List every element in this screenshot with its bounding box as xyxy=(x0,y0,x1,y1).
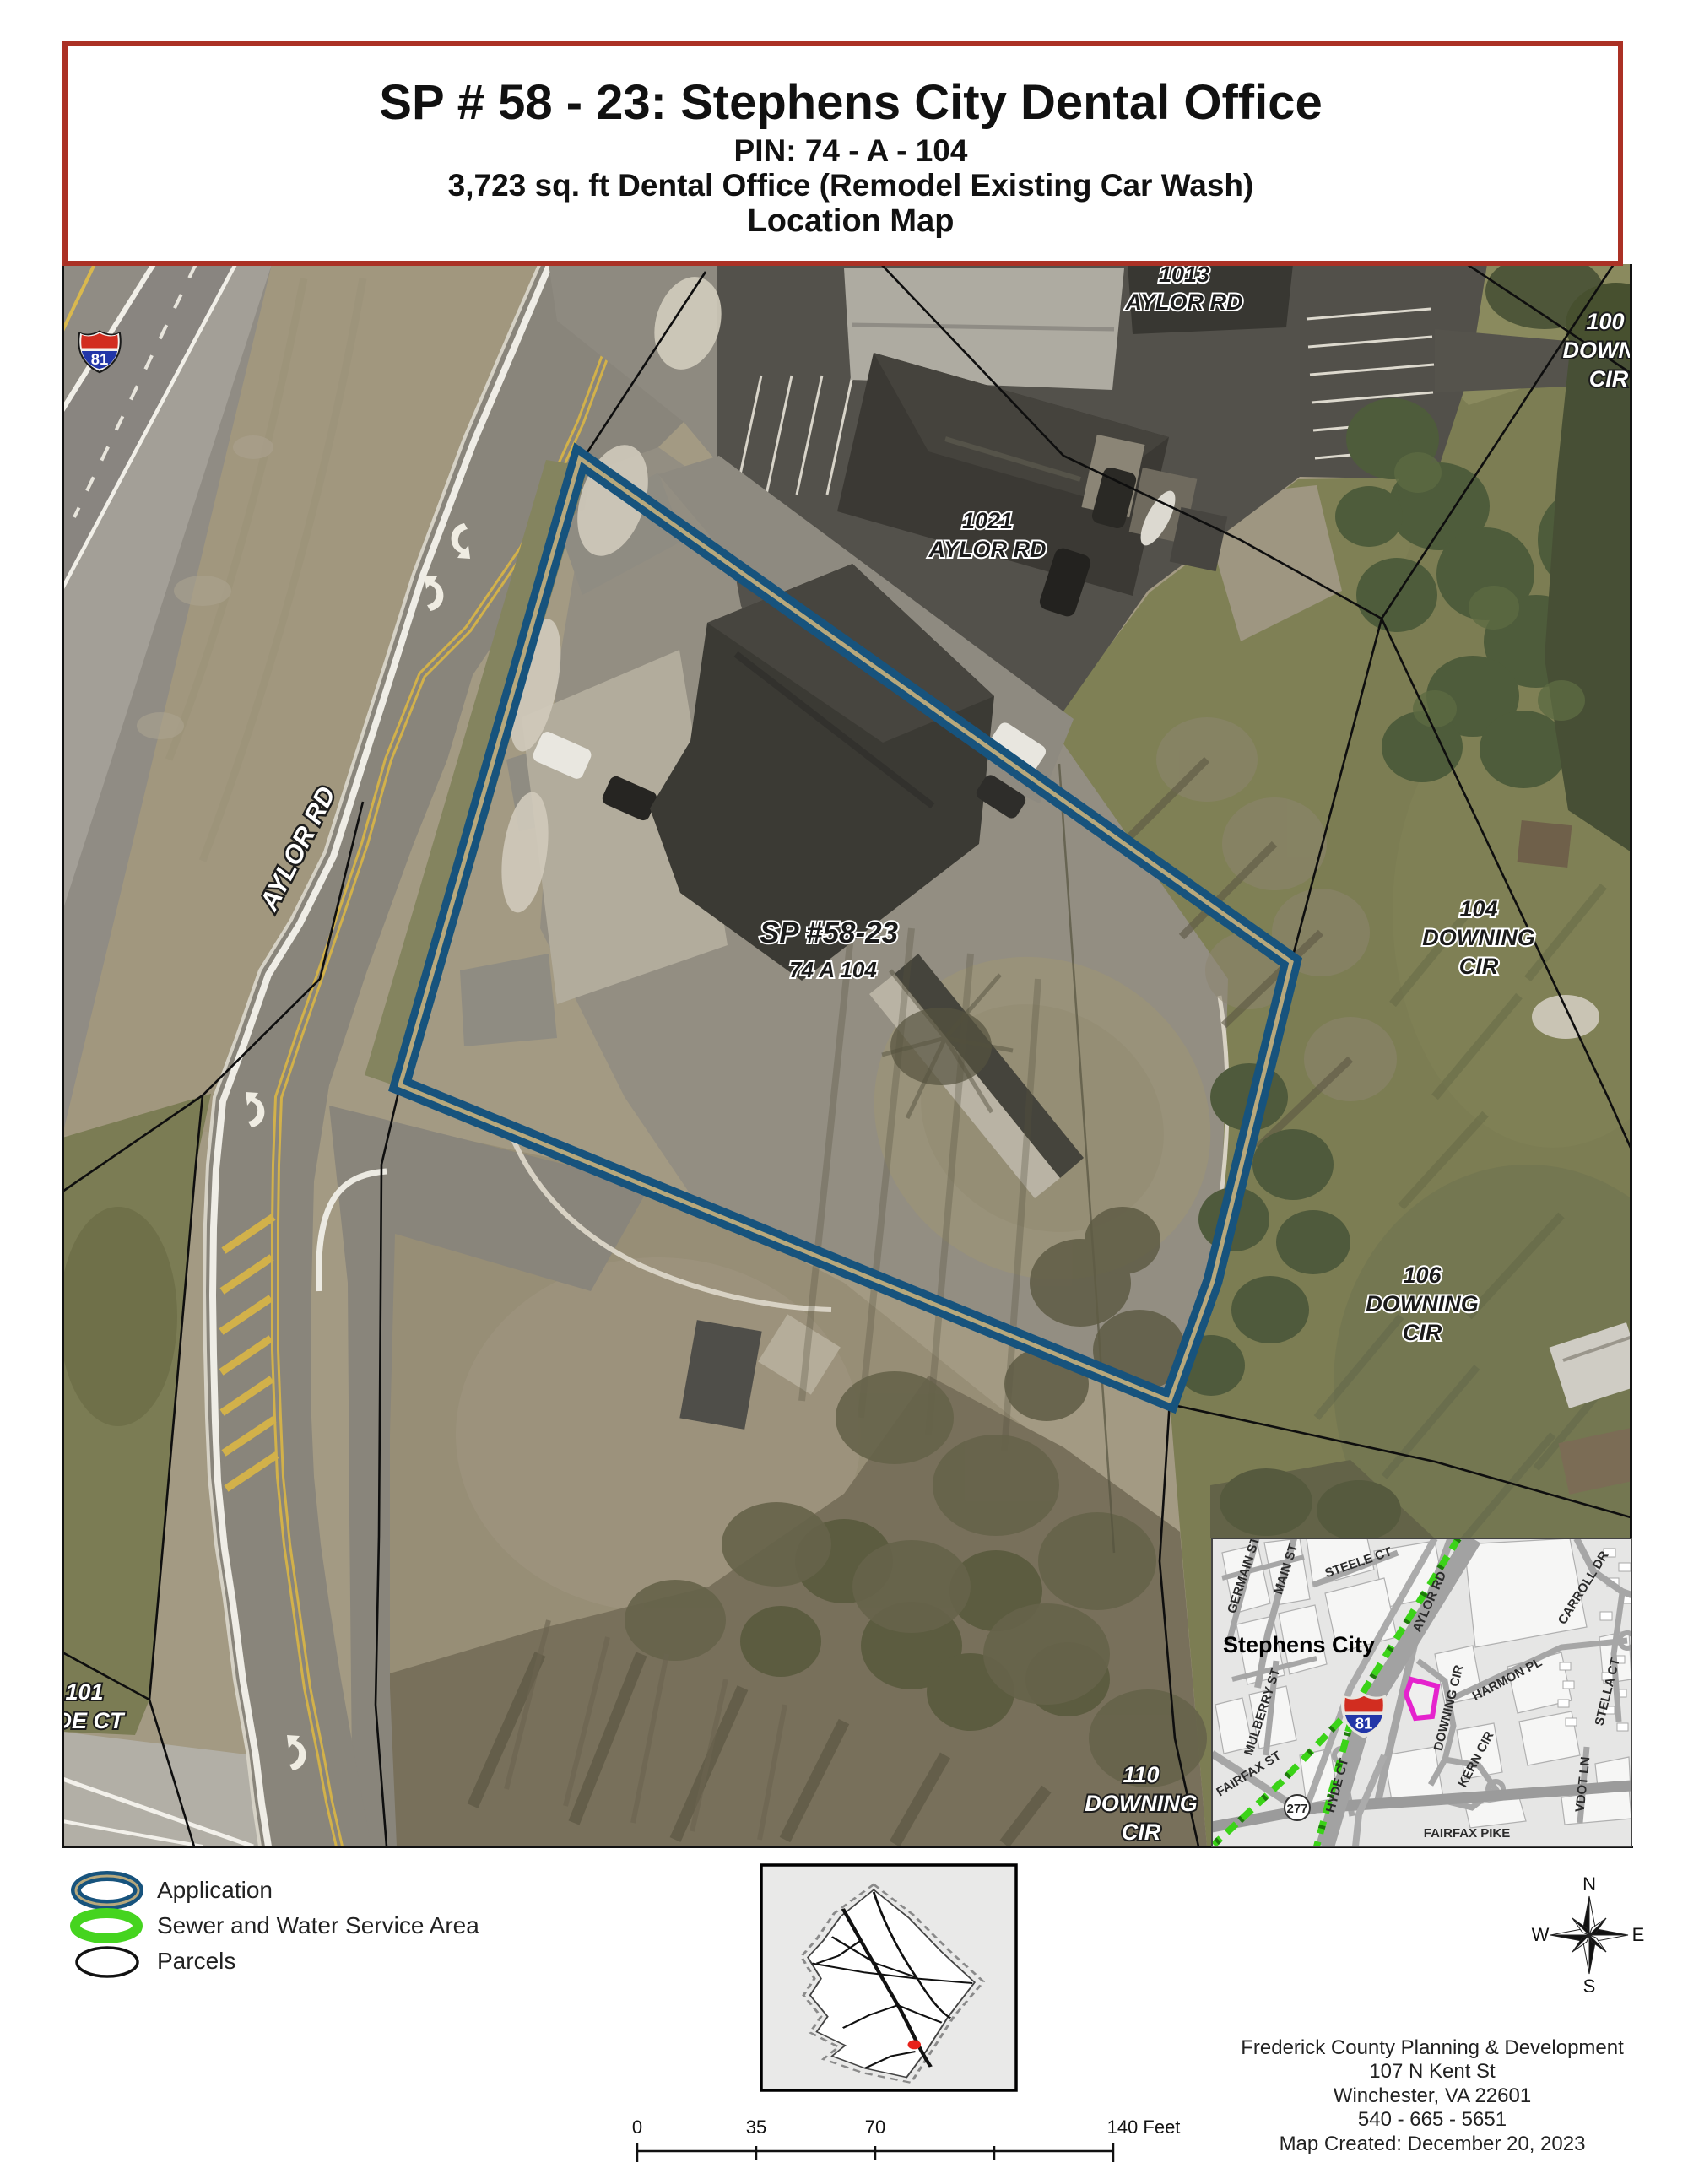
svg-text:Application: Application xyxy=(157,1877,273,1903)
svg-text:81: 81 xyxy=(1355,1715,1372,1733)
svg-text:3,723 sq. ft Dental Office (Re: 3,723 sq. ft Dental Office (Remodel Exis… xyxy=(448,168,1254,203)
svg-text:PIN: 74 - A - 104: PIN: 74 - A - 104 xyxy=(734,133,968,168)
svg-text:104: 104 xyxy=(1459,896,1497,922)
svg-text:0: 0 xyxy=(632,2116,642,2138)
svg-text:100: 100 xyxy=(1586,309,1624,334)
svg-text:Stephens City: Stephens City xyxy=(1223,1632,1375,1657)
svg-text:CIR: CIR xyxy=(1589,366,1629,392)
svg-text:Parcels: Parcels xyxy=(157,1948,235,1974)
svg-text:S: S xyxy=(1583,1976,1596,1997)
svg-text:Map Created: December 20, 2023: Map Created: December 20, 2023 xyxy=(1280,2133,1586,2155)
svg-text:CIR: CIR xyxy=(1122,1819,1161,1845)
svg-text:DOWNING: DOWNING xyxy=(1366,1291,1478,1316)
svg-text:AYLOR RD: AYLOR RD xyxy=(1125,289,1243,315)
svg-text:Frederick County Planning & De: Frederick County Planning & Development xyxy=(1241,2036,1624,2059)
svg-text:81: 81 xyxy=(91,350,109,368)
svg-text:SP # 58 - 23: Stephens City De: SP # 58 - 23: Stephens City Dental Offic… xyxy=(379,75,1322,130)
svg-text:SP #58-23: SP #58-23 xyxy=(760,916,899,949)
svg-text:N: N xyxy=(1582,1873,1596,1895)
svg-text:70: 70 xyxy=(865,2116,885,2138)
svg-text:106: 106 xyxy=(1403,1262,1442,1288)
svg-text:DOWNING: DOWNING xyxy=(1422,925,1534,950)
svg-text:107 N Kent St: 107 N Kent St xyxy=(1369,2060,1496,2083)
svg-text:277: 277 xyxy=(1286,1802,1307,1816)
svg-text:E: E xyxy=(1632,1924,1645,1945)
svg-text:CIR: CIR xyxy=(1403,1320,1442,1345)
svg-text:Winchester, VA 22601: Winchester, VA 22601 xyxy=(1334,2084,1531,2107)
svg-text:540 - 665 - 5651: 540 - 665 - 5651 xyxy=(1358,2108,1507,2131)
svg-text:101: 101 xyxy=(65,1679,103,1705)
svg-text:AYLOR RD: AYLOR RD xyxy=(928,537,1047,562)
svg-text:74 A 104: 74 A 104 xyxy=(789,957,877,982)
svg-text:Location Map: Location Map xyxy=(748,203,955,239)
svg-text:W: W xyxy=(1532,1924,1550,1945)
svg-text:DOWNING: DOWNING xyxy=(1085,1791,1197,1816)
svg-text:110: 110 xyxy=(1123,1762,1159,1787)
svg-text:DOWNI: DOWNI xyxy=(1563,338,1642,363)
svg-text:140 Feet: 140 Feet xyxy=(1107,2116,1181,2138)
svg-text:CIR: CIR xyxy=(1459,954,1499,979)
svg-text:1021: 1021 xyxy=(962,508,1013,533)
svg-text:Sewer and Water Service Area: Sewer and Water Service Area xyxy=(157,1912,479,1938)
svg-text:FAIRFAX PIKE: FAIRFAX PIKE xyxy=(1424,1826,1511,1841)
svg-text:DE CT: DE CT xyxy=(56,1708,127,1733)
svg-text:35: 35 xyxy=(746,2116,766,2138)
